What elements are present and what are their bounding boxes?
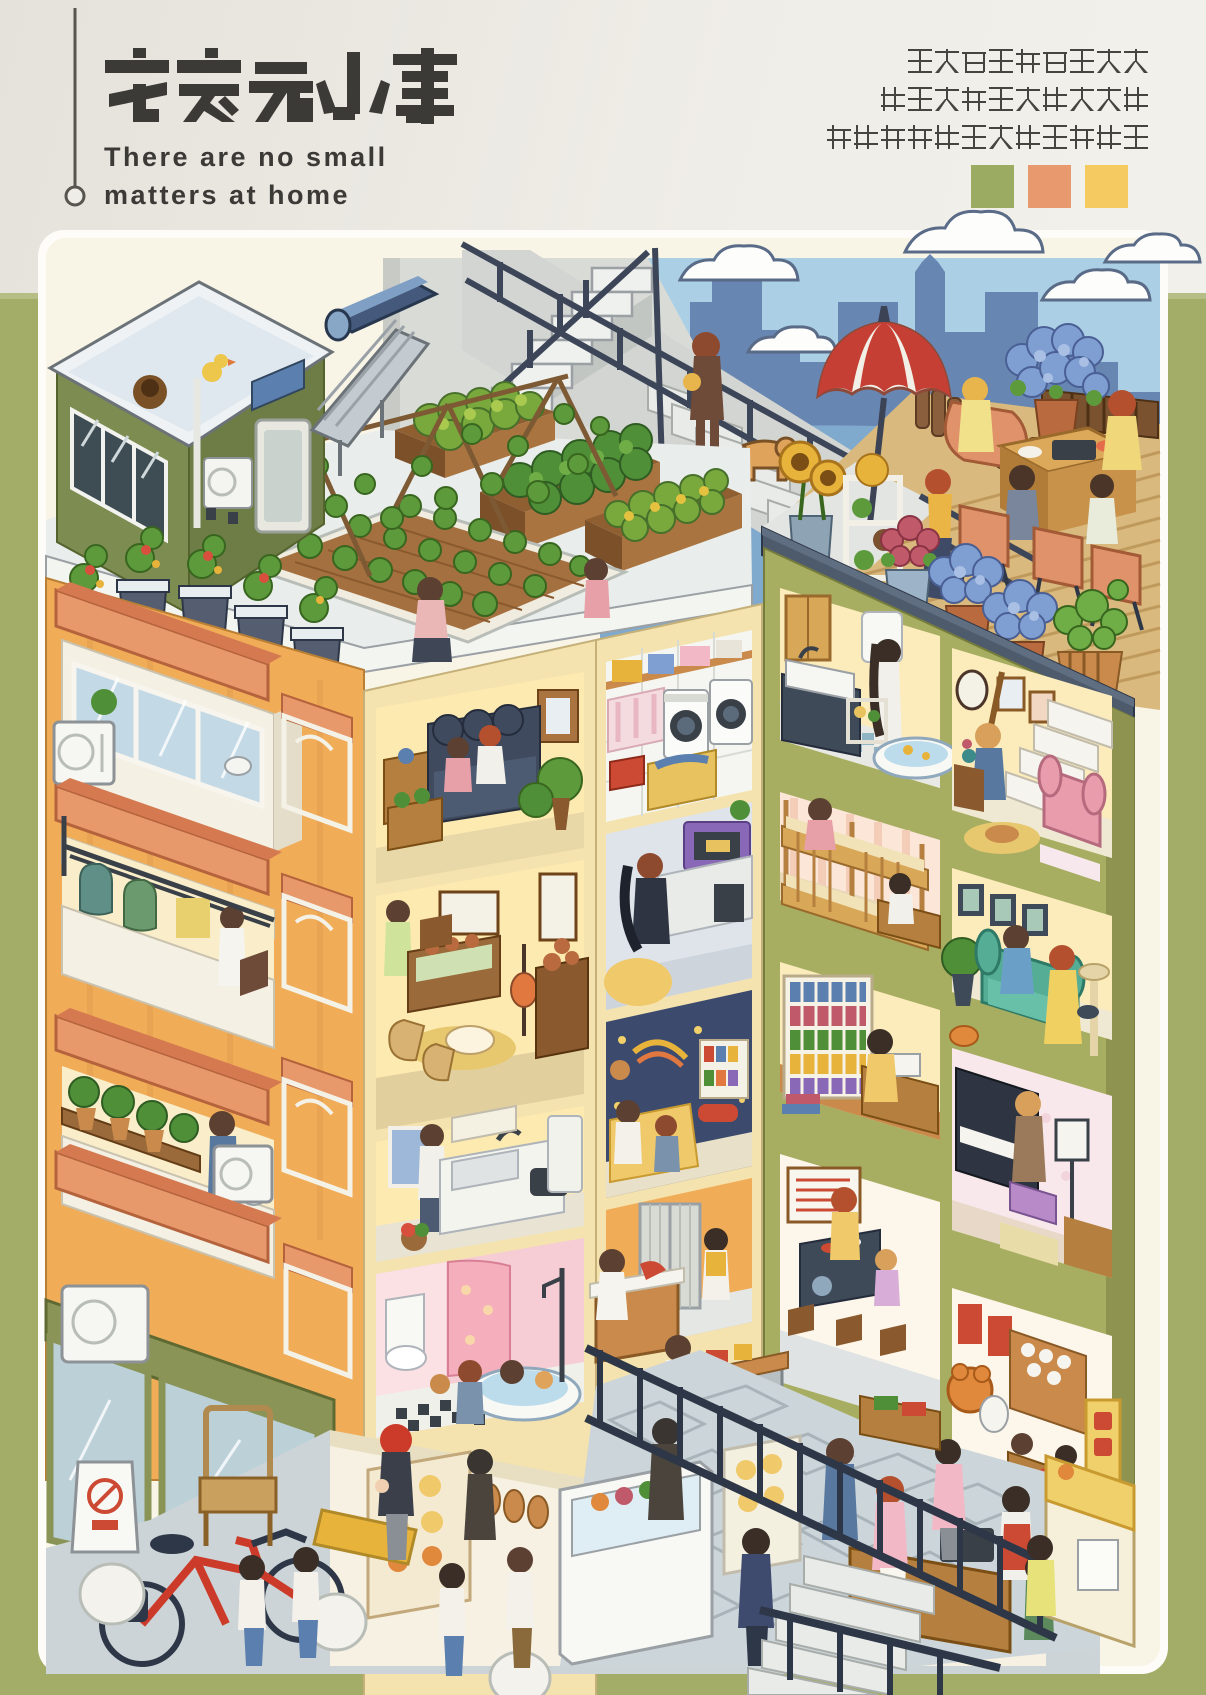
svg-text:There are no small: There are no small	[104, 142, 388, 172]
svg-text:matters at home: matters at home	[104, 180, 350, 210]
